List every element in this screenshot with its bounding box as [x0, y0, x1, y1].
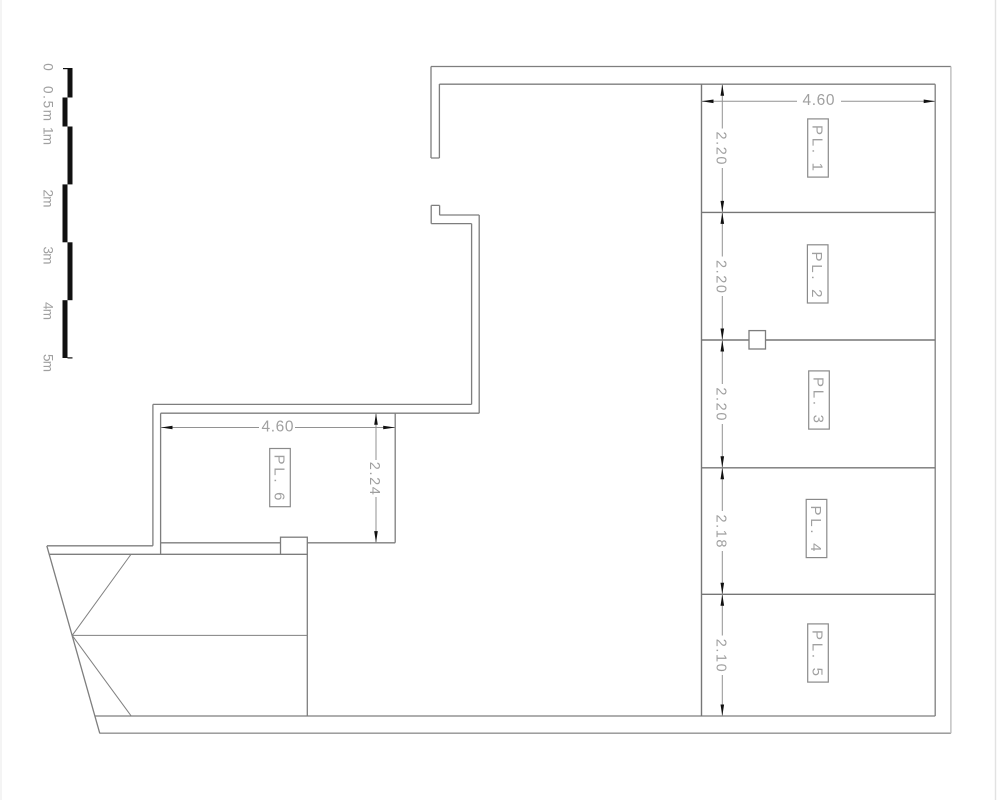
svg-text:2.18: 2.18	[713, 515, 729, 548]
svg-text:4.60: 4.60	[262, 418, 294, 435]
svg-text:2.20: 2.20	[713, 260, 729, 293]
svg-text:3m: 3m	[41, 247, 56, 265]
svg-text:5m: 5m	[41, 354, 56, 372]
svg-text:2.10: 2.10	[713, 639, 729, 672]
svg-text:PL. 3: PL. 3	[809, 377, 826, 423]
svg-text:0.5m: 0.5m	[41, 86, 56, 121]
svg-text:PL. 6: PL. 6	[270, 455, 287, 501]
svg-text:2.20: 2.20	[713, 387, 729, 420]
svg-text:2m: 2m	[41, 190, 56, 208]
svg-text:PL. 5: PL. 5	[808, 630, 825, 676]
svg-text:4m: 4m	[41, 302, 56, 320]
svg-text:2.20: 2.20	[713, 132, 729, 165]
svg-text:4.60: 4.60	[803, 92, 835, 109]
svg-text:PL. 2: PL. 2	[808, 252, 825, 298]
svg-text:PL. 4: PL. 4	[807, 506, 824, 552]
svg-text:0: 0	[41, 63, 56, 71]
svg-text:1m: 1m	[41, 127, 56, 145]
svg-text:PL. 1: PL. 1	[808, 125, 825, 171]
svg-text:2.24: 2.24	[366, 462, 382, 495]
